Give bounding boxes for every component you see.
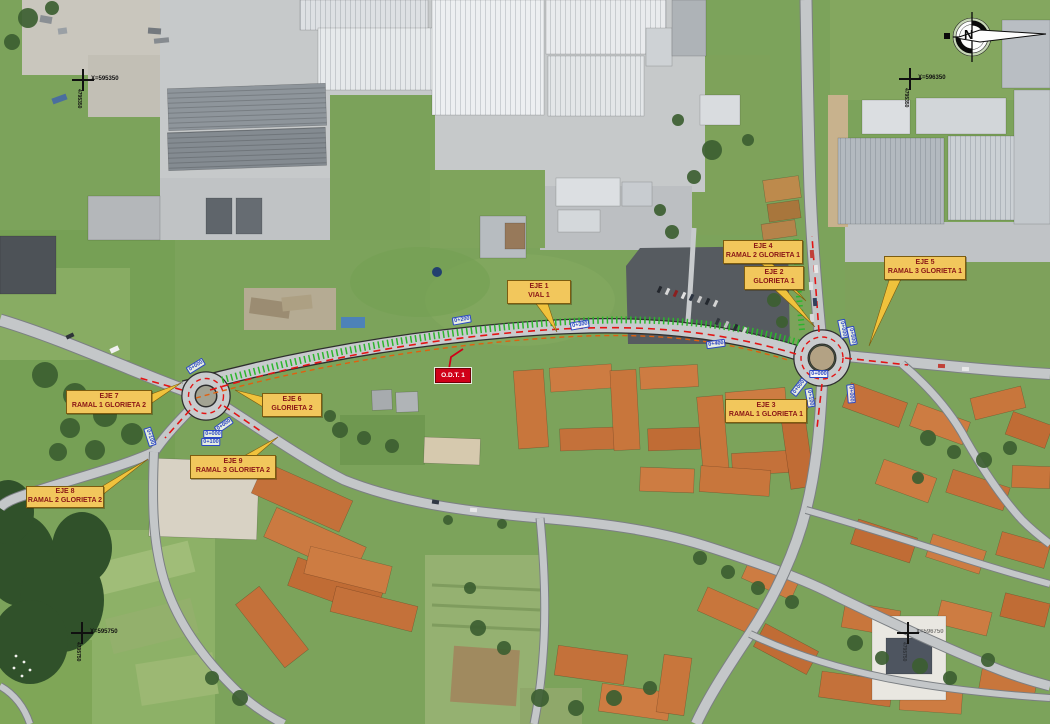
- label-line: RAMAL 3 GLORIETA 1: [885, 268, 965, 277]
- label-line: EJE 6: [263, 396, 321, 405]
- aerial-photo-canvas: [0, 0, 1050, 724]
- x-coordinate-label: X=596350: [918, 75, 946, 81]
- axis-label-eje6: EJE 6 GLORIETA 2: [262, 393, 322, 417]
- label-line: RAMAL 2 GLORIETA 2: [27, 497, 103, 506]
- axis-label-eje9: EJE 9 RAMAL 3 GLORIETA 2: [190, 455, 276, 479]
- y-coordinate-label: 4795750: [75, 642, 81, 661]
- label-line: EJE 3: [726, 402, 806, 411]
- label-line: GLORIETA 1: [745, 278, 803, 287]
- label-line: EJE 5: [885, 259, 965, 268]
- odt-culvert-label: O.D.T. 1: [435, 368, 471, 383]
- y-coordinate-label: 4795350: [903, 88, 909, 107]
- compass-north-letter: N: [964, 27, 973, 42]
- chainage-marker: 0+000: [203, 430, 222, 438]
- pool: [341, 317, 365, 328]
- axis-label-eje8: EJE 8 RAMAL 2 GLORIETA 2: [26, 486, 104, 508]
- chainage-marker: 0+100: [201, 438, 220, 446]
- label-line: EJE 1: [508, 283, 570, 292]
- axis-label-eje4: EJE 4 RAMAL 2 GLORIETA 1: [723, 240, 803, 264]
- label-line: EJE 2: [745, 269, 803, 278]
- axis-label-eje7: EJE 7 RAMAL 1 GLORIETA 2: [66, 390, 152, 414]
- road-project-aerial-plan: EJE 1 VIAL 1 EJE 2 GLORIETA 1 EJE 3 RAMA…: [0, 0, 1050, 724]
- label-line: VIAL 1: [508, 292, 570, 301]
- axis-label-eje1: EJE 1 VIAL 1: [507, 280, 571, 304]
- label-line: GLORIETA 2: [263, 405, 321, 414]
- label-line: EJE 8: [27, 488, 103, 497]
- axis-label-eje2: EJE 2 GLORIETA 1: [744, 266, 804, 290]
- y-coordinate-label: 4795350: [76, 89, 82, 108]
- label-line: EJE 4: [724, 243, 802, 252]
- label-line: EJE 9: [191, 458, 275, 467]
- axis-label-eje5: EJE 5 RAMAL 3 GLORIETA 1: [884, 256, 966, 280]
- chainage-marker: 0+000: [846, 384, 856, 404]
- x-coordinate-label: X=596750: [916, 629, 944, 635]
- x-coordinate-label: X=595750: [90, 629, 118, 635]
- label-line: RAMAL 1 GLORIETA 1: [726, 411, 806, 420]
- x-coordinate-label: X=595350: [91, 76, 119, 82]
- water-tank: [432, 267, 442, 277]
- chainage-marker: 0+000: [809, 370, 828, 378]
- label-line: EJE 7: [67, 393, 151, 402]
- label-line: RAMAL 1 GLORIETA 2: [67, 402, 151, 411]
- axis-label-eje3: EJE 3 RAMAL 1 GLORIETA 1: [725, 399, 807, 423]
- label-line: RAMAL 3 GLORIETA 2: [191, 467, 275, 476]
- label-line: RAMAL 2 GLORIETA 1: [724, 252, 802, 261]
- y-coordinate-label: 4795750: [901, 642, 907, 661]
